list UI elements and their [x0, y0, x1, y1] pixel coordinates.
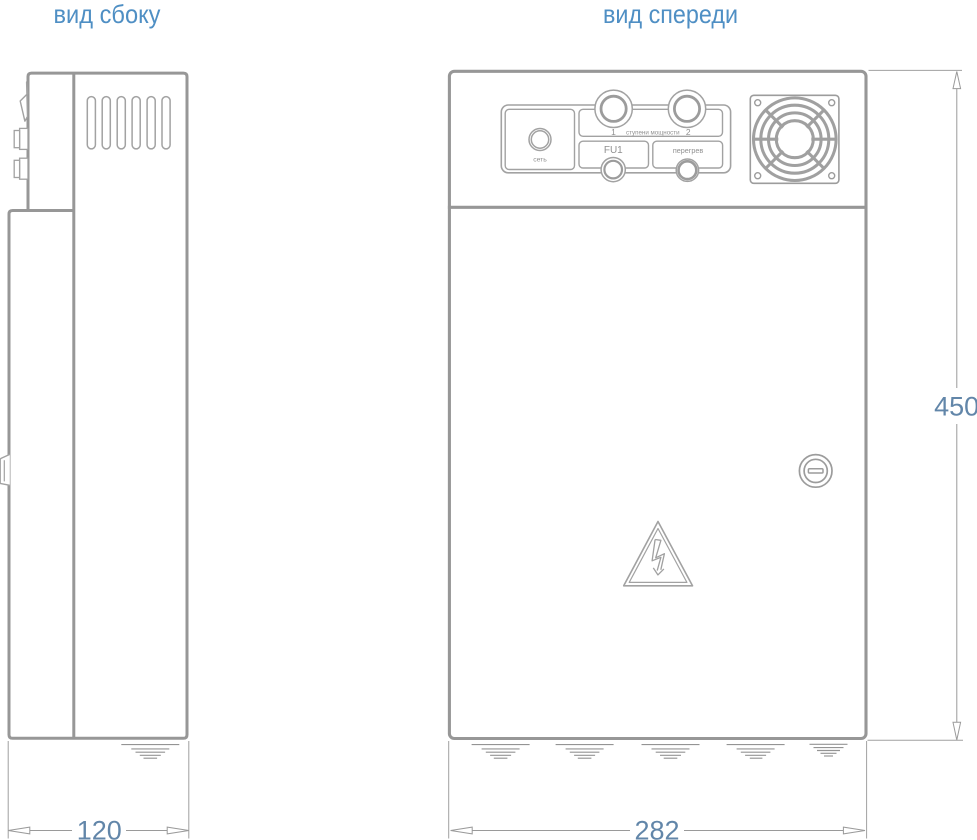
svg-text:вид сбоку: вид сбоку — [54, 0, 161, 29]
svg-text:вид спереди: вид спереди — [603, 0, 738, 29]
svg-text:120: 120 — [77, 816, 122, 840]
svg-text:FU1: FU1 — [604, 145, 623, 156]
svg-text:450: 450 — [934, 392, 977, 422]
svg-text:перегрев: перегрев — [673, 146, 704, 155]
svg-text:282: 282 — [634, 816, 679, 840]
svg-text:2: 2 — [686, 127, 691, 137]
svg-text:ступени мощности: ступени мощности — [626, 129, 680, 136]
svg-text:сеть: сеть — [533, 157, 547, 164]
svg-text:1: 1 — [611, 127, 616, 137]
